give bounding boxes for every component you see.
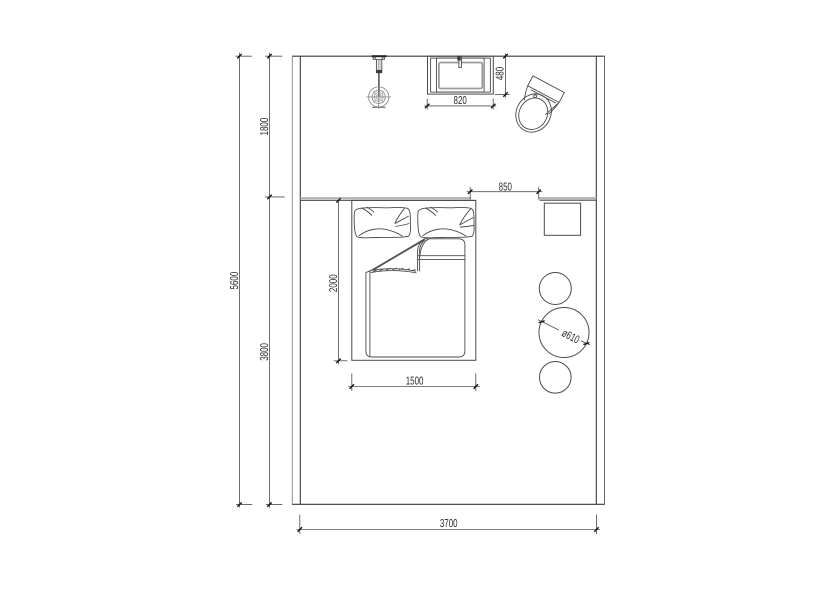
svg-text:3700: 3700 xyxy=(440,518,458,530)
svg-text:3800: 3800 xyxy=(259,343,271,361)
svg-text:820: 820 xyxy=(454,95,467,107)
svg-text:2000: 2000 xyxy=(328,274,340,292)
svg-text:850: 850 xyxy=(499,181,512,193)
svg-text:5600: 5600 xyxy=(229,272,241,290)
svg-text:1800: 1800 xyxy=(259,118,271,136)
svg-text:480: 480 xyxy=(495,67,507,80)
svg-text:ø610: ø610 xyxy=(560,328,582,347)
svg-text:1500: 1500 xyxy=(406,375,424,387)
